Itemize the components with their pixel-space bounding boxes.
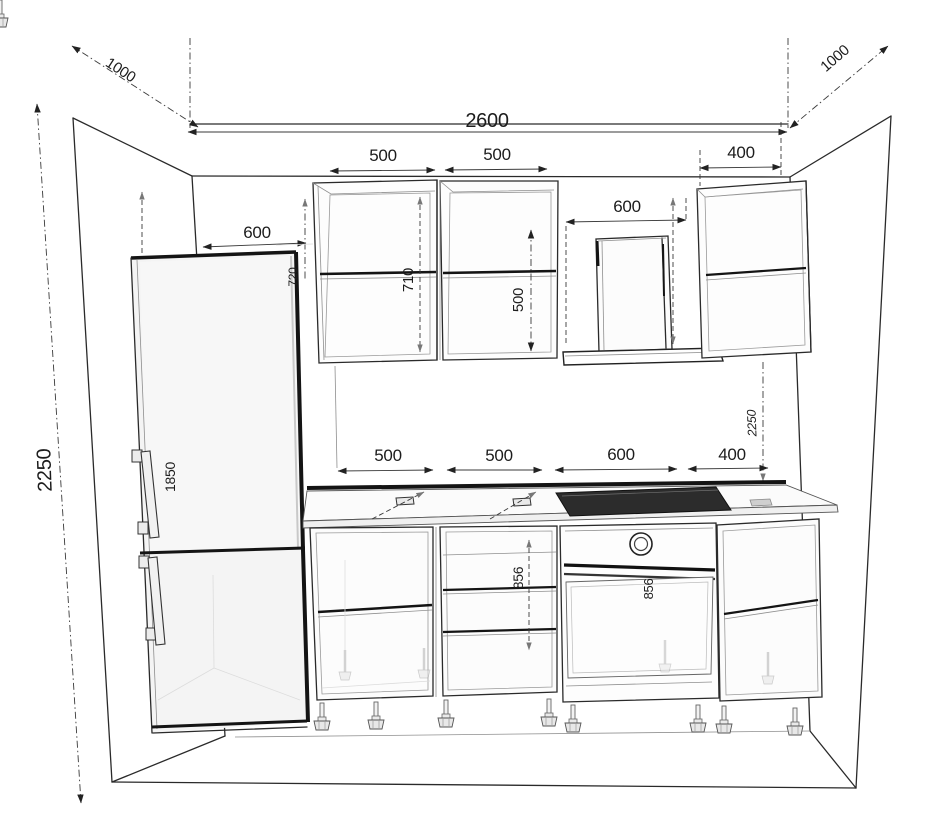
dim-depth-right: 1000: [790, 42, 888, 128]
dim-wall-cab1-label: 500: [369, 146, 396, 165]
dim-right-total-height-label: 2250: [745, 409, 760, 437]
dim-base2-label: 500: [485, 446, 512, 465]
fridge: 1850: [131, 252, 308, 733]
wall-cabinet-2: [437, 180, 558, 360]
base-cabinet-oven: 856: [560, 523, 719, 702]
dim-room-height: 2250: [33, 104, 81, 803]
dim-wall-cab2-label: 500: [483, 145, 510, 164]
dim-base3-label: 600: [607, 445, 634, 464]
dim-depth-left-label: 1000: [102, 54, 138, 86]
dim-fridge-width-label: 600: [243, 223, 270, 242]
countertop: [303, 482, 838, 528]
dim-wall-cab-right-label: 400: [727, 143, 754, 162]
dim-fridge-width: 600: [142, 192, 306, 253]
counter-fitting: [750, 499, 772, 506]
base-cabinet-1: [310, 527, 433, 700]
dim-depth-left: 1000: [72, 46, 198, 127]
dim-base-widths: 500 500 600 400: [335, 366, 768, 471]
dim-wall-cab-widths: 500 500: [330, 145, 547, 171]
dim-room-width-label: 2600: [465, 110, 508, 132]
dim-room-height-label: 2250: [33, 448, 57, 492]
dim-fridge-top-clearance-label: 720: [286, 267, 300, 287]
dim-right-total-height: 2250: [745, 362, 763, 481]
oven-door: [566, 577, 713, 678]
dim-hood-width-label: 600: [613, 197, 640, 216]
dim-base1-label: 500: [374, 446, 401, 465]
dim-wall-cab1-height-label: 710: [400, 268, 417, 292]
oven-knob: [630, 533, 652, 555]
base-cabinet-4: [717, 519, 822, 701]
dim-oven-inner-label: 856: [641, 579, 656, 600]
dim-base4-label: 400: [718, 445, 745, 464]
kitchen-elevation-drawing: 2600 1000 1000 2250: [0, 0, 943, 833]
base-cabinet-2-drawers: 856: [436, 526, 557, 697]
dim-room-width: 2600: [188, 110, 787, 132]
dim-base2-inner-label: 856: [510, 566, 526, 589]
dim-wall-cab2-height-label: 500: [510, 288, 527, 312]
dim-depth-right-label: 1000: [817, 42, 852, 76]
dim-fridge-height-label: 1850: [162, 462, 178, 492]
wall-cabinet-right: [697, 181, 811, 358]
